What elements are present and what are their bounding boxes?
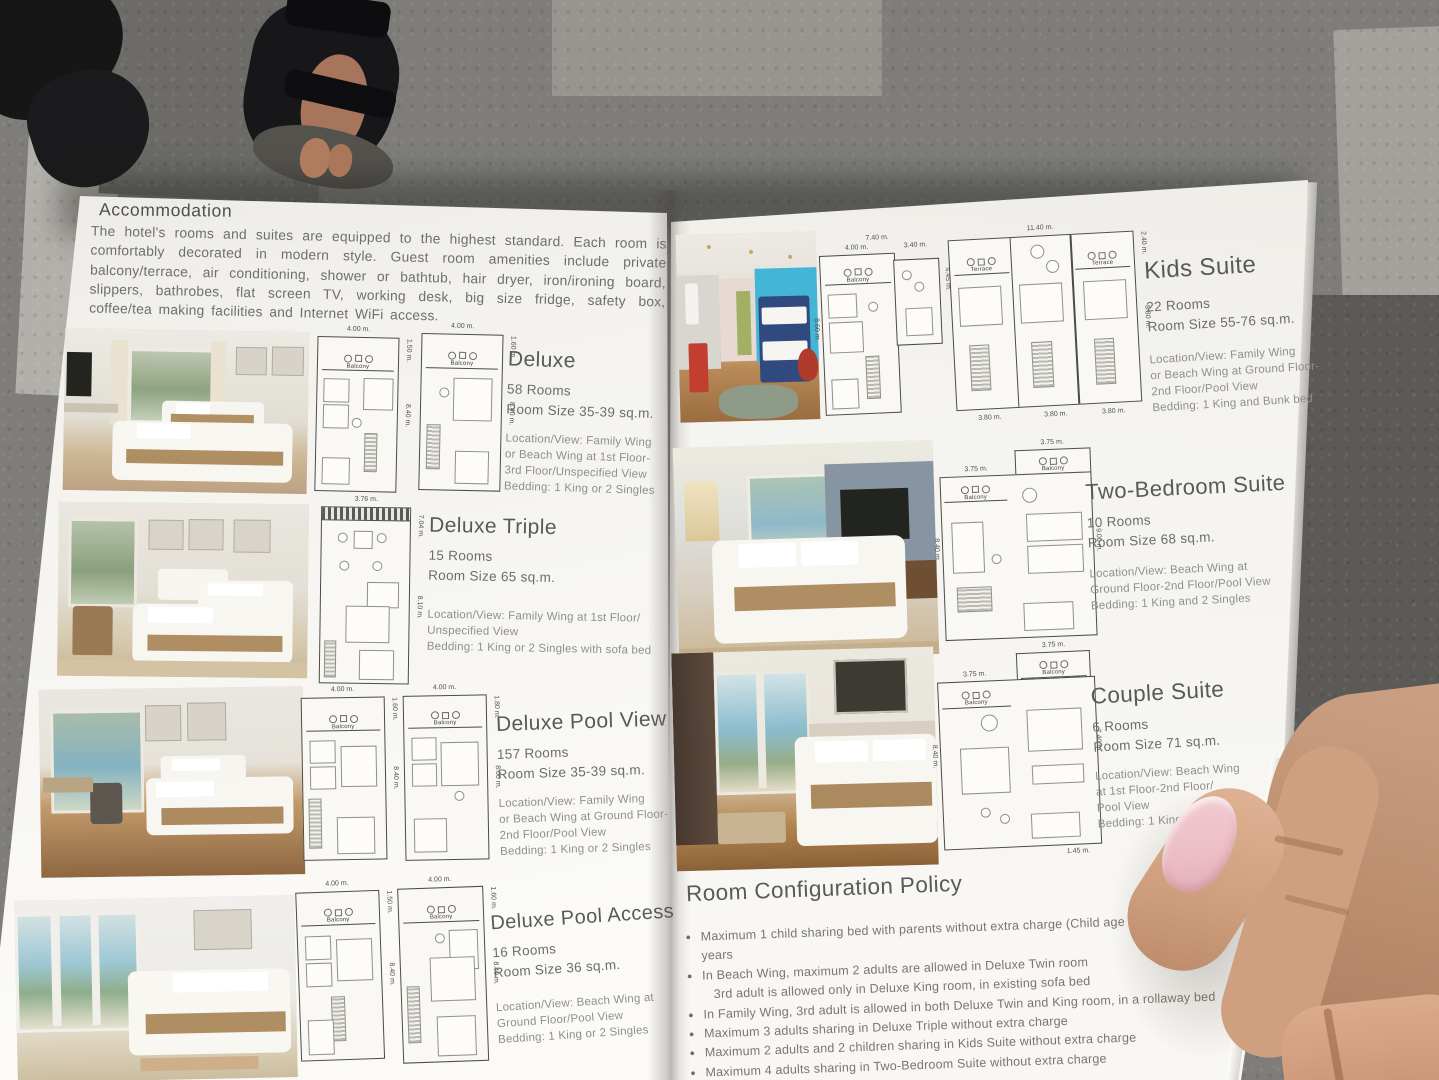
balcony-label: Balcony <box>332 724 355 731</box>
dim-label: 3.80 m. <box>1081 406 1147 416</box>
dim-label: 1.60 m. <box>489 886 497 910</box>
dim-label: 3.75 m. <box>1016 437 1088 447</box>
dim-label: 1.50 m. <box>405 339 412 363</box>
floorplan-couple-suite: 3.75 m. 3.75 m. Balcony Balcony 8.40 m. … <box>936 641 1111 856</box>
dim-label: 3.80 m. <box>957 413 1023 423</box>
dim-label: 1.45 m. <box>1058 847 1098 856</box>
photo-kids-suite <box>676 231 821 423</box>
photo-two-bedroom-suite <box>673 440 940 662</box>
room-name: Couple Suite <box>1090 672 1296 709</box>
room-name: Two-Bedroom Suite <box>1085 469 1311 506</box>
balcony-label: Balcony <box>450 361 473 368</box>
dim-label: 8.40 m. <box>404 404 411 428</box>
photo-deluxe <box>63 328 310 494</box>
dim-label: 8.60 m. <box>813 318 821 342</box>
dim-label: 4.00 m. <box>818 243 894 253</box>
dim-label: 7.04 m. <box>417 515 424 538</box>
floorplan-pool-view-b: 4.00 m. Balcony 1.80 m. 8.00 m. <box>402 685 503 861</box>
terrace-label: Terrace <box>1092 260 1114 268</box>
floorplan-two-bedroom-suite: 3.75 m. 3.75 m. Balcony Balcony 8.40 m. … <box>938 439 1110 647</box>
floorplan-deluxe-triple: 3.76 m. 7.04 m. 8.10 m. <box>319 497 426 684</box>
room-info-deluxe-pool-view: Deluxe Pool View 157 Rooms Room Size 35-… <box>496 707 681 860</box>
photo-deluxe-pool-view <box>39 686 306 878</box>
floorplan-kids-suite-b: 11.40 m. Terrace Terrace 2.40 m. 8.80 m.… <box>947 221 1157 423</box>
balcony-label: Balcony <box>327 917 350 924</box>
balcony-label: Balcony <box>964 494 987 501</box>
floorplan-pool-view-a: 4.00 m. Balcony 1.60 m. 8.40 m. <box>301 687 402 861</box>
dim-label: 3.40 m. <box>894 241 936 250</box>
room-info-deluxe-pool-access: Deluxe Pool Access 16 Rooms Room Size 36… <box>490 900 689 1049</box>
room-info-deluxe-triple: Deluxe Triple 15 Rooms Room Size 65 sq.m… <box>427 514 680 660</box>
dim-label: 3.80 m. <box>1023 409 1089 419</box>
floorplan-kids-suite-a: 7.40 m. 4.00 m. 3.40 m. Balcony 8.60 m. … <box>818 233 962 419</box>
dim-label: 8.40 m. <box>931 744 939 768</box>
dim-label: 4.00 m. <box>422 322 504 331</box>
dim-label: 8.40 m. <box>392 766 399 789</box>
dim-label: 3.75 m. <box>941 464 1011 474</box>
dim-label: 8.40 m. <box>933 538 941 562</box>
dim-label: 1.60 m. <box>391 697 398 720</box>
balcony-label: Balcony <box>965 700 988 708</box>
floorplan-deluxe-a: 4.00 m. Balcony 1.50 m. 8.40 m. <box>314 327 413 493</box>
policy-heading: Room Configuration Policy <box>686 871 963 908</box>
balcony-label: Balcony <box>430 914 453 921</box>
dim-label: 2.40 m. <box>1139 231 1147 255</box>
room-size: Room Size 65 sq.m. <box>428 565 678 589</box>
room-name: Deluxe Pool Access <box>490 900 681 936</box>
photo-couple-suite <box>671 647 939 872</box>
floorplan-pool-access-b: 4.00 m. Balcony 1.60 m. 8.40 m. <box>397 876 503 1063</box>
dim-label: 1.50 m. <box>385 890 393 914</box>
dim-label: 4.00 m. <box>402 683 486 691</box>
brochure-photo-scene: Accommodation The hotel's rooms and suit… <box>0 0 1439 1080</box>
room-detail-line: Bedding: 1 King or 2 Singles with sofa b… <box>427 639 677 660</box>
dim-label: 3.75 m. <box>939 669 1011 679</box>
room-info-deluxe: Deluxe 58 Rooms Room Size 35-39 sq.m. Lo… <box>504 347 674 500</box>
balcony-label: Balcony <box>846 277 869 285</box>
balcony-label: Balcony <box>346 363 369 370</box>
room-info-two-bedroom-suite: Two-Bedroom Suite 10 Rooms Room Size 68 … <box>1085 469 1316 615</box>
page-title-accommodation: Accommodation <box>99 199 232 221</box>
dim-label: 8.10 m. <box>416 595 423 618</box>
dim-label: 3.76 m. <box>321 495 411 503</box>
dim-label: 4.00 m. <box>295 879 379 889</box>
balcony-label: Balcony <box>1042 670 1065 678</box>
dim-label: 4.00 m. <box>397 875 483 885</box>
intro-paragraph: The hotel's rooms and suites are equippe… <box>89 221 667 331</box>
terrace-label: Terrace <box>971 266 993 274</box>
room-size: Room Size 35-39 sq.m. <box>506 399 672 424</box>
photo-deluxe-pool-access <box>14 895 298 1080</box>
room-name: Kids Suite <box>1143 247 1329 286</box>
dim-label: 8.40 m. <box>388 962 396 986</box>
dim-label: 4.00 m. <box>300 685 384 693</box>
room-name: Deluxe Triple <box>429 514 679 543</box>
room-name: Deluxe Pool View <box>496 707 677 737</box>
balcony-label: Balcony <box>434 720 457 727</box>
floorplan-pool-access-a: 4.00 m. Balcony 1.50 m. 8.40 m. <box>295 880 399 1061</box>
room-name: Deluxe <box>508 347 674 376</box>
photo-deluxe-triple <box>57 502 309 679</box>
room-info-kids-suite: Kids Suite 22 Rooms Room Size 55-76 sq.m… <box>1143 247 1337 417</box>
dim-label: 4.00 m. <box>318 325 400 334</box>
floorplan-deluxe-b: 4.00 m. Balcony 1.60 m. 8.40 m. <box>418 324 517 492</box>
